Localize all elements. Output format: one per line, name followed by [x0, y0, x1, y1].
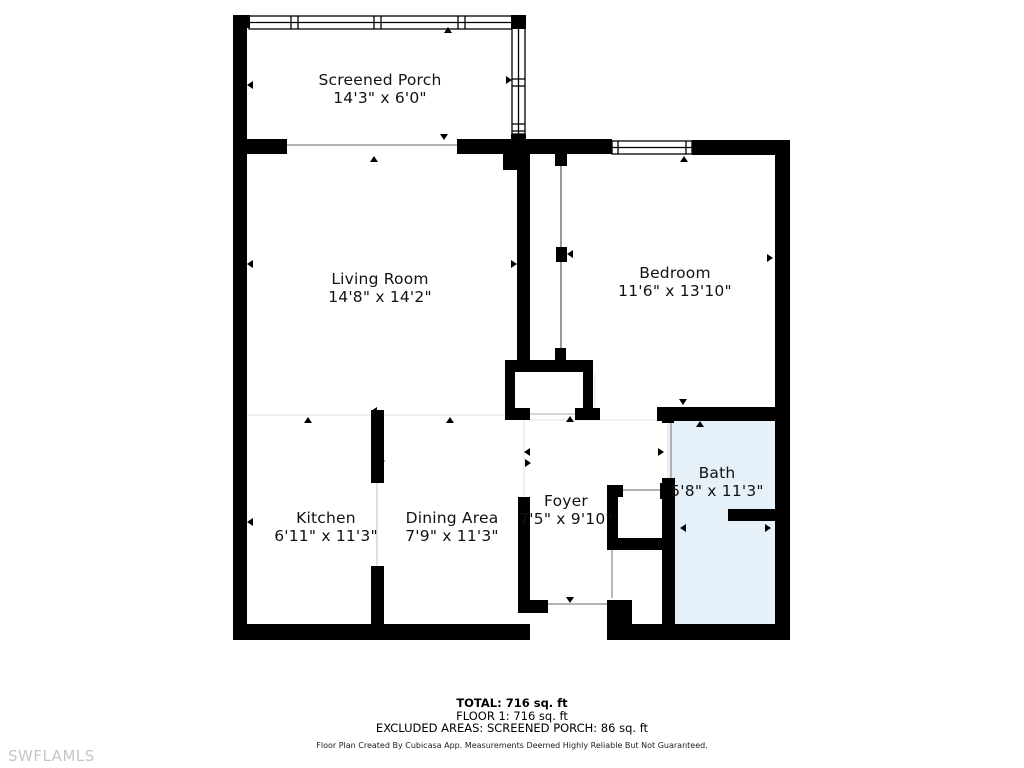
summary-excluded-areas: EXCLUDED AREAS: SCREENED PORCH: 86 sq. f…	[0, 722, 1024, 734]
room-dims: 6'11" x 11'3"	[274, 527, 378, 545]
room-name: Bath	[670, 464, 764, 482]
room-dims: 11'6" x 13'10"	[618, 282, 732, 300]
room-label-bedroom: Bedroom 11'6" x 13'10"	[618, 264, 732, 300]
room-name: Bedroom	[618, 264, 732, 282]
room-name: Living Room	[328, 270, 432, 288]
cubicasa-credit: Floor Plan Created By Cubicasa App. Meas…	[0, 741, 1024, 750]
room-label-dining-area: Dining Area 7'9" x 11'3"	[405, 509, 499, 545]
room-label-bath: Bath 5'8" x 11'3"	[670, 464, 764, 500]
room-label-screened-porch: Screened Porch 14'3" x 6'0"	[318, 71, 441, 107]
floor-plan-drawing	[0, 0, 1024, 768]
room-label-living-room: Living Room 14'8" x 14'2"	[328, 270, 432, 306]
room-label-foyer: Foyer 7'5" x 9'10"	[519, 492, 613, 528]
summary-total: TOTAL: 716 sq. ft	[0, 697, 1024, 709]
room-dims: 14'8" x 14'2"	[328, 288, 432, 306]
room-dims: 5'8" x 11'3"	[670, 482, 764, 500]
room-dims: 14'3" x 6'0"	[318, 89, 441, 107]
room-name: Dining Area	[405, 509, 499, 527]
floor-plan-page: Screened Porch 14'3" x 6'0" Living Room …	[0, 0, 1024, 768]
room-dims: 7'5" x 9'10"	[519, 510, 613, 528]
room-name: Kitchen	[274, 509, 378, 527]
windows-and-screens	[249, 16, 692, 154]
space-boundary-lines	[247, 374, 657, 497]
mls-watermark: SWFLAMLS	[8, 747, 95, 765]
room-name: Foyer	[519, 492, 613, 510]
bath-floor-fill	[667, 421, 775, 624]
room-dims: 7'9" x 11'3"	[405, 527, 499, 545]
room-name: Screened Porch	[318, 71, 441, 89]
room-label-kitchen: Kitchen 6'11" x 11'3"	[274, 509, 378, 545]
